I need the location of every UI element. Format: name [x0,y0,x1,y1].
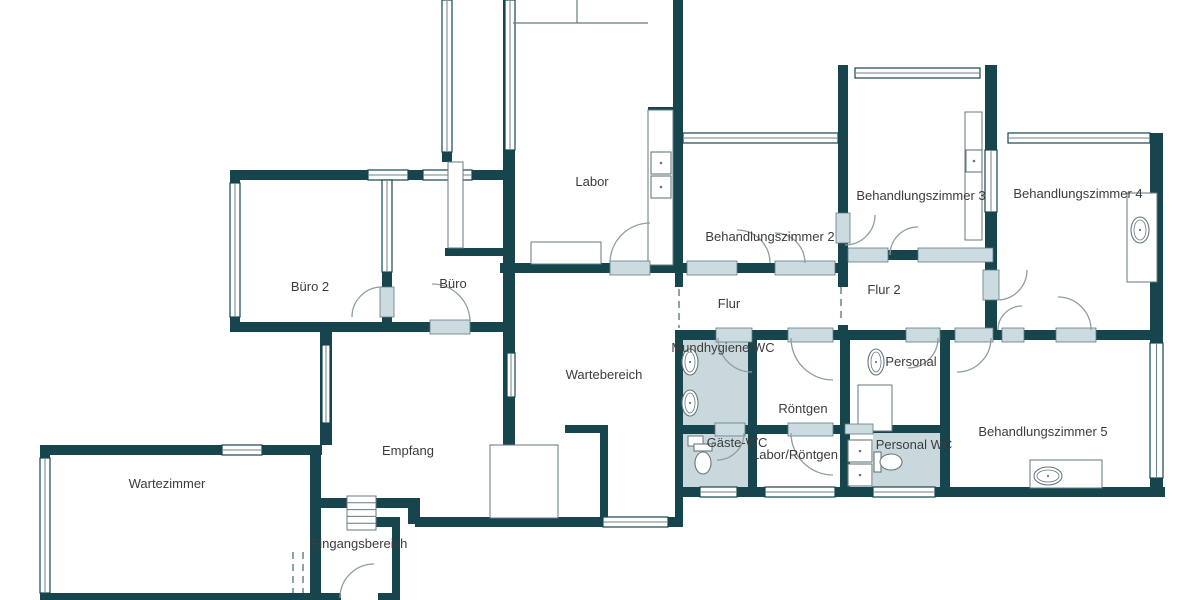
door-sill [788,423,833,436]
wall [673,0,683,273]
sink-drain [689,402,691,404]
sink-drain [973,160,976,163]
door-sill [788,328,833,342]
wall [1150,478,1163,497]
door-sill [430,320,470,334]
door-arc [1058,297,1091,330]
room-label-buero: Büro [439,276,466,291]
door-arc [997,270,1027,300]
room-label-labor: Labor [575,174,609,189]
room-label-behandlungszimmer4: Behandlungszimmer 4 [1013,186,1142,201]
door-sill [983,270,999,300]
interior-partition [531,242,601,264]
stairs-icon [347,496,376,530]
interior-partition [490,445,558,518]
room-label-wartezimmer: Wartezimmer [129,476,206,491]
wall [378,593,400,600]
sink-drain [875,361,877,363]
door-arc [998,306,1022,330]
door-sill [836,213,850,243]
door-sill [955,328,993,342]
room-label-personal-wc: Personal WC [876,437,953,452]
door-sill [1056,328,1096,342]
wall [600,425,608,520]
wall [408,498,420,524]
door-arc [957,338,991,372]
room-label-buero2: Büro 2 [291,279,329,294]
door-arc [352,287,382,317]
wall [985,65,997,150]
toilet-icon [695,452,711,474]
wall [313,498,347,508]
door-sill [906,328,940,342]
wall [445,248,505,256]
sink-drain [859,474,862,477]
sink-drain [689,361,691,363]
wall [230,322,514,332]
room-label-behandlungszimmer5: Behandlungszimmer 5 [978,424,1107,439]
room-label-mundhygiene-wc: Mundhygiene/WC [671,340,774,355]
room-label-flur: Flur [718,296,741,311]
door-sill [1002,328,1024,342]
door-sill [848,248,888,262]
sink-drain [1047,475,1049,477]
wall [40,445,322,455]
wall [392,517,400,600]
wall [310,448,321,600]
wall [748,338,757,487]
room-label-empfang: Empfang [382,443,434,458]
door-sill [775,261,835,275]
room-label-roentgen: Röntgen [778,401,827,416]
room-label-personal: Personal [885,354,936,369]
door-sill [687,261,737,275]
sink-drain [660,186,663,189]
sink-drain [1139,229,1141,231]
wall [838,65,848,213]
room-label-labor-roentgen: Labor/Röntgen [752,447,838,462]
door-sill [610,261,650,275]
room-label-behandlungszimmer2: Behandlungszimmer 2 [705,229,834,244]
door-arc [610,223,650,263]
floorplan-page: LaborBüro 2BüroBehandlungszimmer 2Behand… [0,0,1200,600]
wall [838,243,848,287]
wall [313,593,341,600]
wall [40,593,312,600]
wall [442,152,452,162]
sink-drain [660,162,663,165]
sink-drain [859,450,862,453]
wall [376,517,400,527]
wall [675,273,683,287]
floorplan-svg: LaborBüro 2BüroBehandlungszimmer 2Behand… [0,0,1200,600]
door-sill [845,424,873,434]
room-label-eingangsbereich: Eingangsbereich [311,536,408,551]
door-sill [380,287,394,317]
door-arc [340,564,374,598]
interior-partition [965,112,982,240]
wall [940,330,950,497]
room-label-behandlungszimmer3: Behandlungszimmer 3 [856,188,985,203]
interior-partition [448,162,463,248]
room-label-flur2: Flur 2 [867,282,900,297]
room-label-wartebereich: Wartebereich [566,367,643,382]
door-arc [791,338,833,380]
toilet-icon [880,454,902,470]
door-sill [918,248,993,262]
